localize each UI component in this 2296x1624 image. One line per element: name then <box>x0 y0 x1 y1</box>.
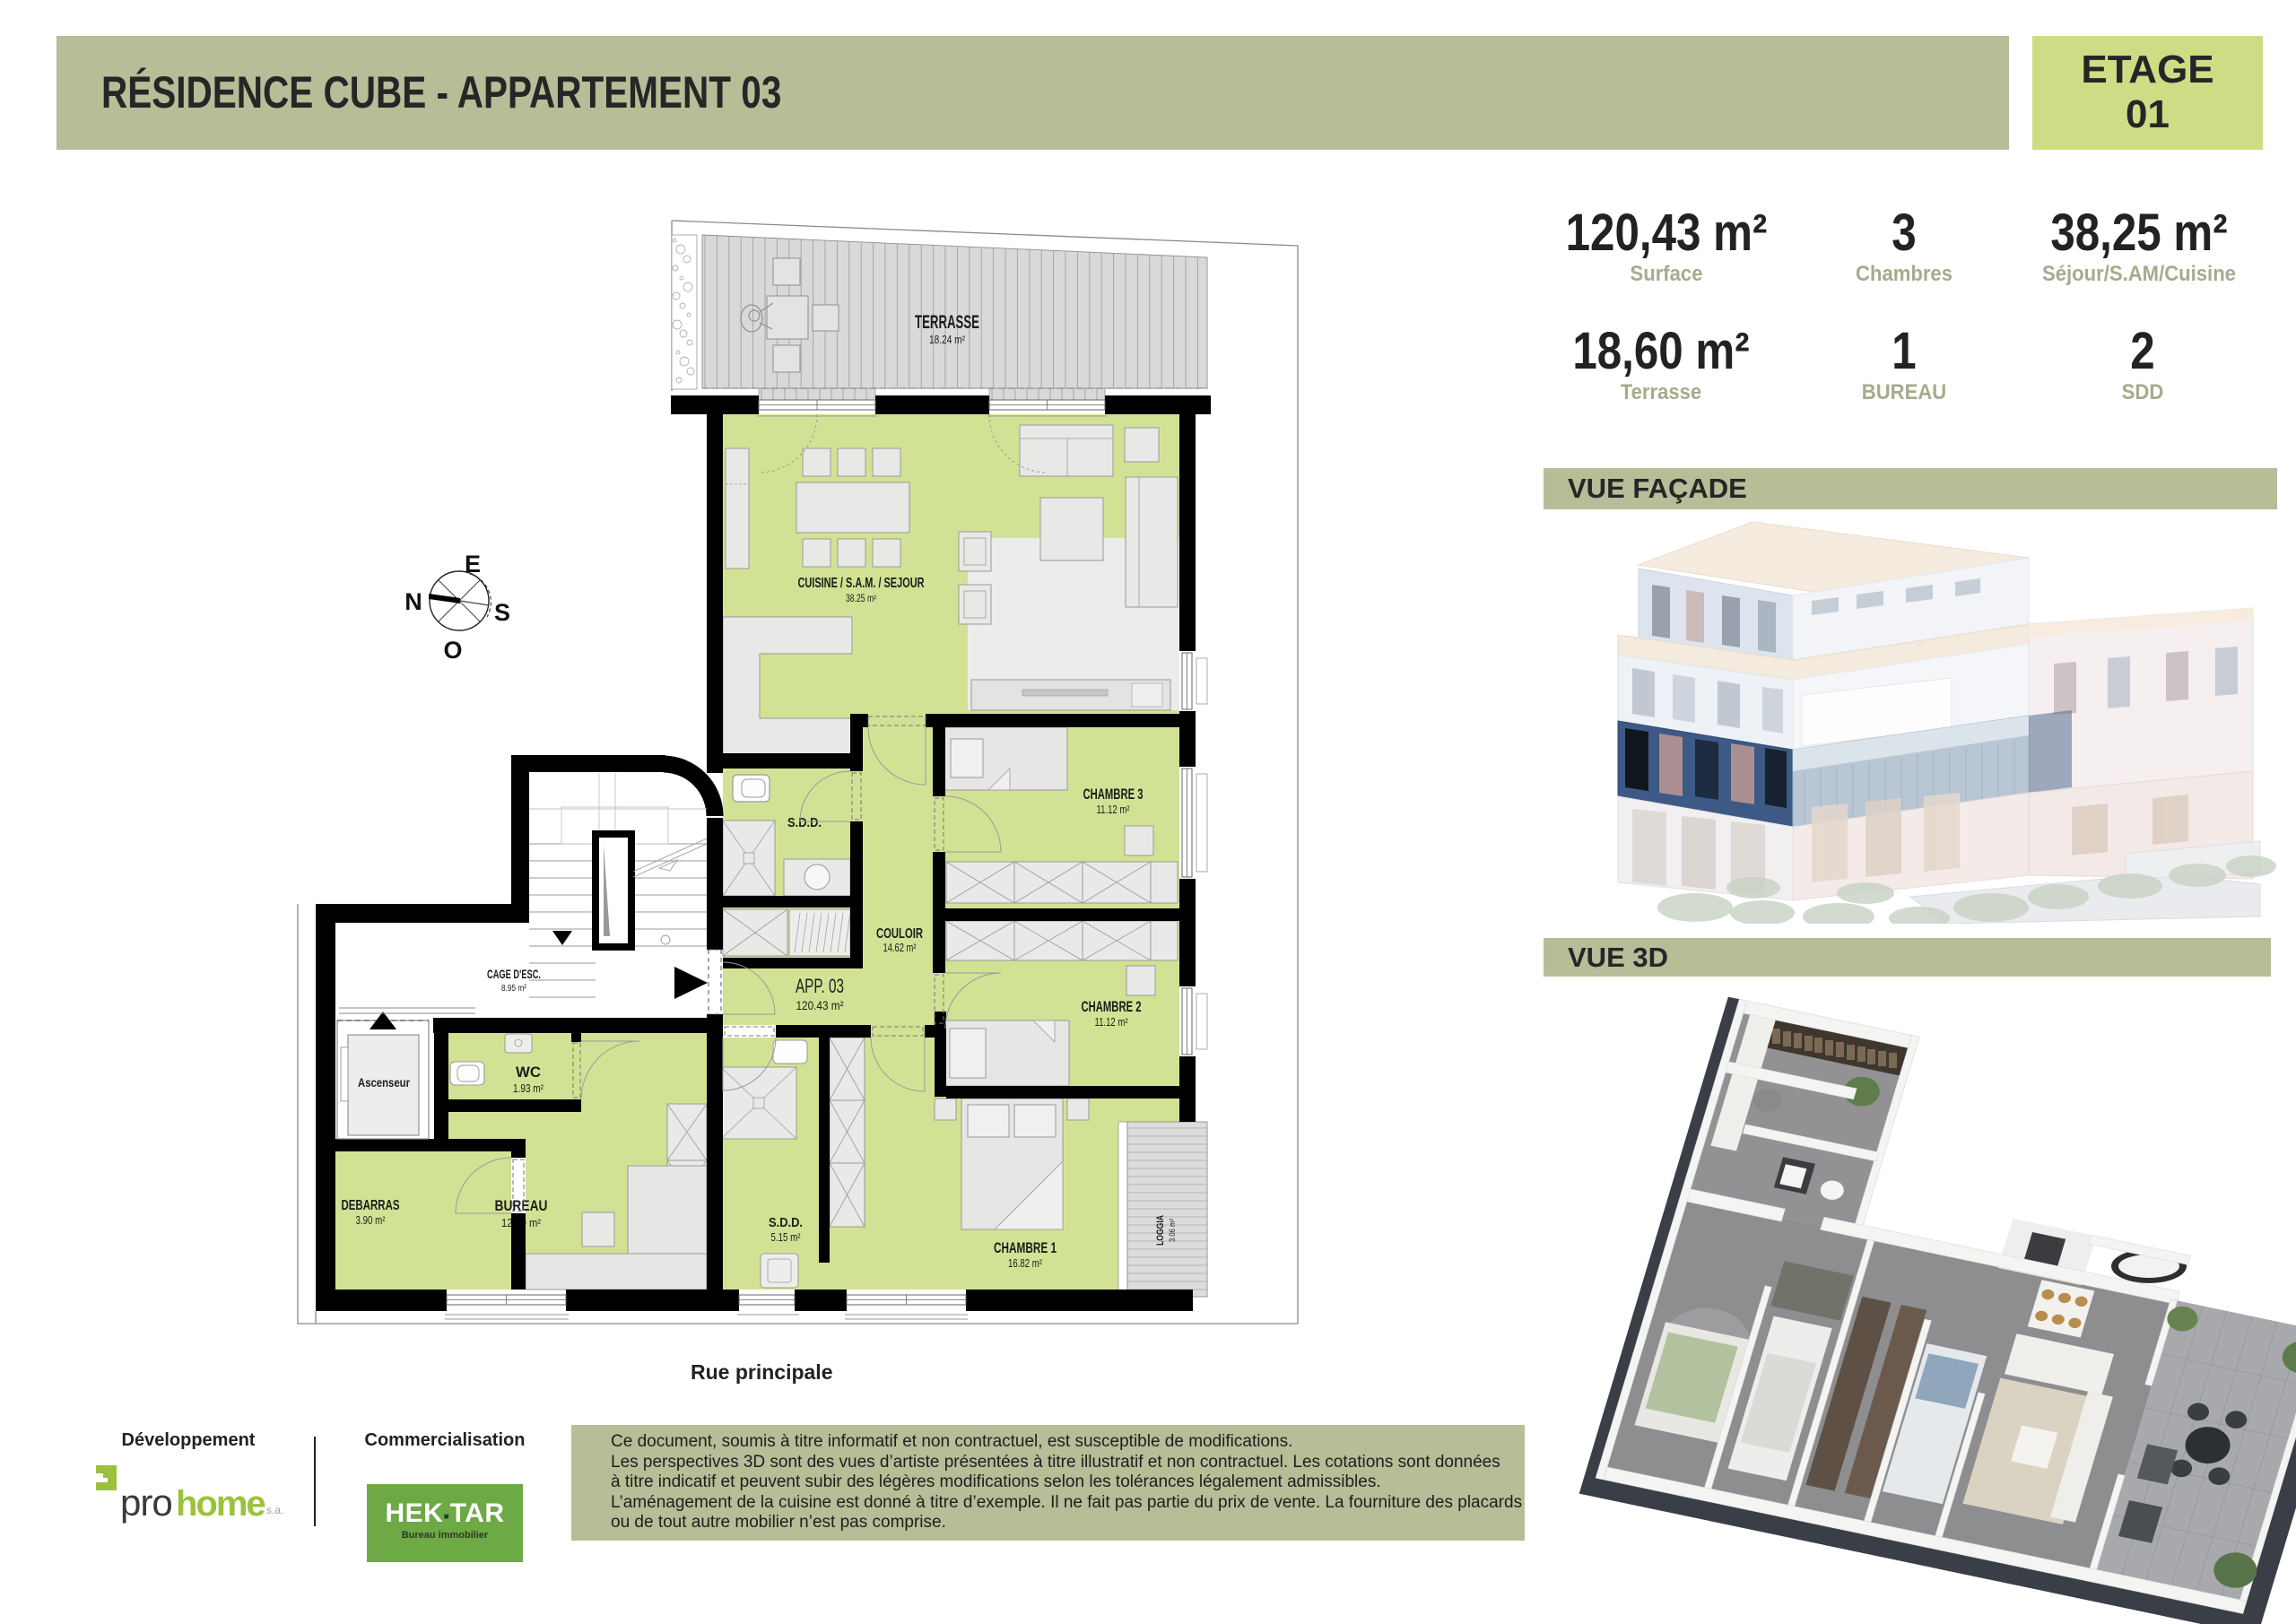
svg-text:CHAMBRE 3: CHAMBRE 3 <box>1083 786 1144 803</box>
svg-text:CHAMBRE 2: CHAMBRE 2 <box>1082 998 1142 1015</box>
svg-text:1.93 m²: 1.93 m² <box>513 1081 544 1095</box>
svg-text:TERRASSE: TERRASSE <box>915 312 979 333</box>
svg-text:N: N <box>404 588 422 615</box>
svg-text:38.25 m²: 38.25 m² <box>846 594 876 604</box>
svg-text:18.24 m²: 18.24 m² <box>929 333 966 346</box>
svg-text:120.43 m²: 120.43 m² <box>796 998 844 1012</box>
svg-text:14.62 m²: 14.62 m² <box>883 942 917 954</box>
svg-text:E: E <box>465 551 481 578</box>
svg-text:3.90 m²: 3.90 m² <box>356 1214 386 1227</box>
svg-text:11.12 m²: 11.12 m² <box>1095 1016 1128 1029</box>
svg-text:CAGE D'ESC.: CAGE D'ESC. <box>487 968 541 981</box>
svg-text:COULOIR: COULOIR <box>876 926 923 942</box>
svg-text:O: O <box>443 637 462 664</box>
svg-text:8.95 m²: 8.95 m² <box>501 984 527 994</box>
svg-text:s.a.: s.a. <box>266 1504 283 1516</box>
svg-text:S.D.D.: S.D.D. <box>787 816 822 830</box>
svg-text:11.12 m²: 11.12 m² <box>1097 803 1130 816</box>
svg-text:S.D.D.: S.D.D. <box>769 1216 803 1230</box>
svg-text:DEBARRAS: DEBARRAS <box>342 1198 400 1213</box>
svg-text:Ascenseur: Ascenseur <box>358 1076 411 1090</box>
svg-text:S: S <box>494 599 510 626</box>
svg-text:WC: WC <box>516 1064 541 1081</box>
svg-text:16.82 m²: 16.82 m² <box>1008 1257 1042 1270</box>
svg-text:CHAMBRE 1: CHAMBRE 1 <box>994 1239 1057 1256</box>
svg-text:3.06 m²: 3.06 m² <box>1168 1219 1177 1242</box>
svg-text:CUISINE / S.A.M. / SEJOUR: CUISINE / S.A.M. / SEJOUR <box>798 576 925 591</box>
svg-text:5.15 m²: 5.15 m² <box>771 1231 801 1244</box>
svg-text:home: home <box>176 1484 265 1524</box>
svg-text:pro: pro <box>120 1481 172 1524</box>
svg-text:APP. 03: APP. 03 <box>796 975 844 997</box>
svg-text:LOGGIA: LOGGIA <box>1155 1215 1166 1246</box>
